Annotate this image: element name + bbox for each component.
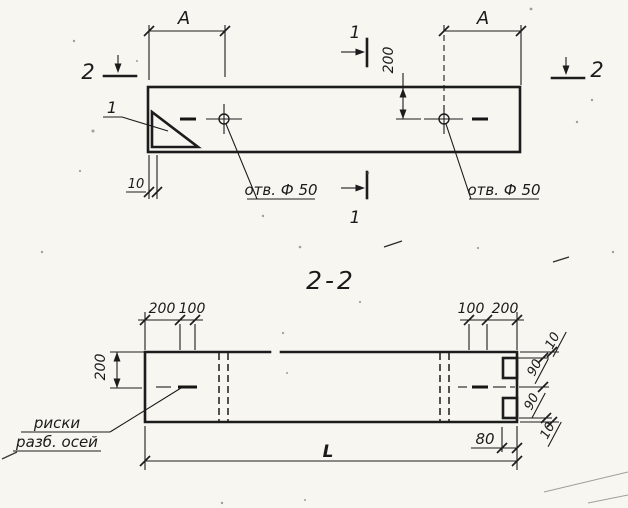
arrowhead [114, 379, 121, 389]
section-marker-2-right: 2 [552, 57, 604, 82]
section-marker-1-bottom: 1 [341, 172, 367, 228]
marker-1-bottom-text: 1 [350, 208, 361, 228]
plan-beam-outline [148, 87, 520, 152]
stray-mark [2, 452, 17, 459]
callout-text: 1 [107, 98, 117, 117]
speck [41, 251, 43, 253]
beam-drawing: A A 200 1 [0, 0, 628, 508]
section-marker-1-top: 1 [341, 23, 367, 66]
arrowhead [563, 66, 570, 76]
speck [530, 8, 533, 11]
scan-line [544, 472, 628, 492]
dim-text: 10 [538, 420, 559, 442]
dims-top-right: 100 200 [458, 301, 524, 350]
speck [359, 301, 361, 303]
speck [282, 332, 284, 334]
dim-a-right: A [439, 8, 526, 111]
arrowhead [356, 49, 366, 56]
marker-2-right-text: 2 [590, 58, 603, 82]
speck [367, 172, 370, 175]
speck [477, 247, 479, 249]
dim-a-right-text: A [476, 8, 489, 29]
dim-100-text: 100 [179, 301, 206, 317]
dim-a-left: A [144, 8, 230, 80]
axis-note-line2: разб. осей [15, 433, 98, 451]
dim-200-section-text: 200 [93, 354, 109, 381]
dim-80: 80 [471, 427, 522, 453]
speck [576, 121, 578, 123]
dim-200-text: 200 [381, 47, 397, 74]
arrowhead [114, 352, 121, 362]
stray-mark [553, 257, 569, 262]
detail-callout-1: 1 [103, 98, 168, 131]
arrowhead [400, 110, 407, 120]
speck [136, 60, 138, 62]
dim-200-text: 200 [492, 301, 519, 317]
speck [262, 215, 264, 217]
dim-10-plan: 10 [126, 155, 162, 199]
speck [221, 502, 223, 504]
axis-note: риски разб. осей [13, 388, 181, 451]
arrowhead [356, 185, 366, 192]
arrowhead [400, 88, 407, 98]
dim-200-section: 200 [93, 352, 144, 388]
dims-right-edge: 10 90 90 10 [518, 325, 566, 447]
dim-length-text: L [323, 442, 334, 462]
speck [73, 40, 75, 42]
dim-90-lower: 90 [519, 386, 545, 418]
dims-top-left: 200 100 [138, 301, 205, 350]
dim-length-L: L [140, 426, 522, 470]
arrowhead [115, 64, 122, 74]
corner-detail-triangle [152, 112, 198, 147]
stray-mark [384, 241, 402, 247]
notch-top [503, 358, 517, 378]
axis-note-line1: риски [33, 414, 81, 432]
dim-100-text: 100 [458, 301, 485, 317]
section-view: 2-2 200 [13, 266, 566, 470]
dim-80-text: 80 [475, 430, 494, 448]
dim-text: 10 [543, 330, 564, 352]
hole-label-right: отв. Ф 50 [446, 124, 541, 199]
section-title: 2-2 [306, 266, 356, 295]
scan-artifacts [2, 8, 628, 505]
drawing-sheet: A A 200 1 [0, 0, 628, 508]
dim-200-text: 200 [149, 301, 176, 317]
dim-200-plan: 200 [381, 47, 421, 119]
hole-label-right-text: отв. Ф 50 [467, 181, 540, 199]
notch-bottom [503, 398, 517, 418]
speck [591, 99, 593, 101]
marker-2-left-text: 2 [81, 60, 94, 84]
marker-1-top-text: 1 [350, 23, 361, 43]
dim-10-text: 10 [128, 177, 145, 192]
hole-label-left: отв. Ф 50 [226, 124, 318, 199]
speck [79, 170, 81, 172]
dim-text: 90 [522, 391, 543, 413]
dim-text: 90 [525, 357, 546, 379]
hole-right [424, 105, 488, 134]
dim-10-bottom: 10 [535, 415, 561, 447]
speck [612, 251, 614, 253]
dim-a-left-text: A [177, 8, 190, 29]
plan-view: A A 200 1 [81, 8, 603, 228]
speck [92, 130, 95, 133]
hole-label-left-text: отв. Ф 50 [244, 181, 317, 199]
scan-line [588, 495, 628, 503]
speck [286, 372, 288, 374]
speck [304, 499, 306, 501]
speck [299, 246, 302, 249]
section-marker-2-left: 2 [81, 55, 136, 84]
hole-left [180, 104, 242, 134]
